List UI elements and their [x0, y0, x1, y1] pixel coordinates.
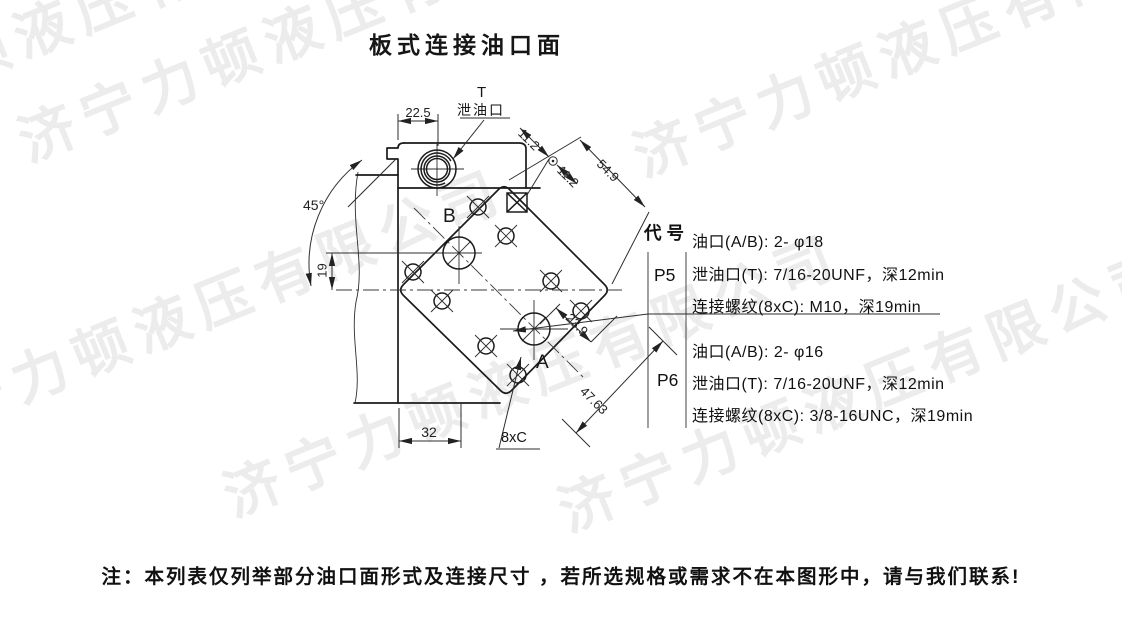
- spec-p5-threads: 连接螺纹(8xC): M10，深19min: [692, 293, 921, 317]
- dim-diag-total: 54.9: [590, 152, 626, 188]
- page-title: 板式连接油口面: [336, 26, 598, 60]
- dim-port-offset: 23.9: [560, 307, 595, 342]
- spec-table-header: 代号: [644, 220, 689, 245]
- spec-p5-drain: 泄油口(T): 7/16-20UNF，深12min: [692, 261, 945, 285]
- spec-code-p5: P5: [654, 265, 675, 286]
- dim-angle: 45°: [303, 197, 324, 213]
- drain-symbol-label: T: [477, 84, 486, 101]
- dim-bolt-span: 47.63: [572, 379, 615, 422]
- port-a-label: A: [536, 352, 549, 374]
- text-layer: 板式连接油口面 T 泄油口 B A 8xC 22.5 11.2 11.2 54.…: [0, 0, 1122, 618]
- spec-p5-ports: 油口(A/B): 2- φ18: [692, 228, 824, 252]
- spec-p6-ports: 油口(A/B): 2- φ16: [692, 338, 824, 362]
- footer-note: 注：本列表仅列举部分油口面形式及连接尺寸 ，若所选规格或需求不在本图形中，请与我…: [0, 560, 1122, 589]
- dim-height-left: 19: [315, 257, 330, 285]
- engineering-drawing-page: { "title": "板式连接油口面", "drawing": { "labe…: [0, 0, 1122, 618]
- dim-top-width: 22.5: [398, 105, 438, 120]
- dim-seg-a: 11.2: [512, 122, 547, 157]
- dim-bottom-width: 32: [409, 424, 449, 440]
- bolt-pattern-label: 8xC: [501, 430, 527, 446]
- dim-seg-b: 11.2: [551, 159, 586, 194]
- spec-code-p6: P6: [657, 370, 678, 391]
- port-b-label: B: [443, 206, 456, 228]
- spec-p6-drain: 泄油口(T): 7/16-20UNF，深12min: [692, 370, 945, 394]
- spec-p6-threads: 连接螺纹(8xC): 3/8-16UNC，深19min: [692, 402, 973, 426]
- drain-port-label: 泄油口: [451, 100, 511, 120]
